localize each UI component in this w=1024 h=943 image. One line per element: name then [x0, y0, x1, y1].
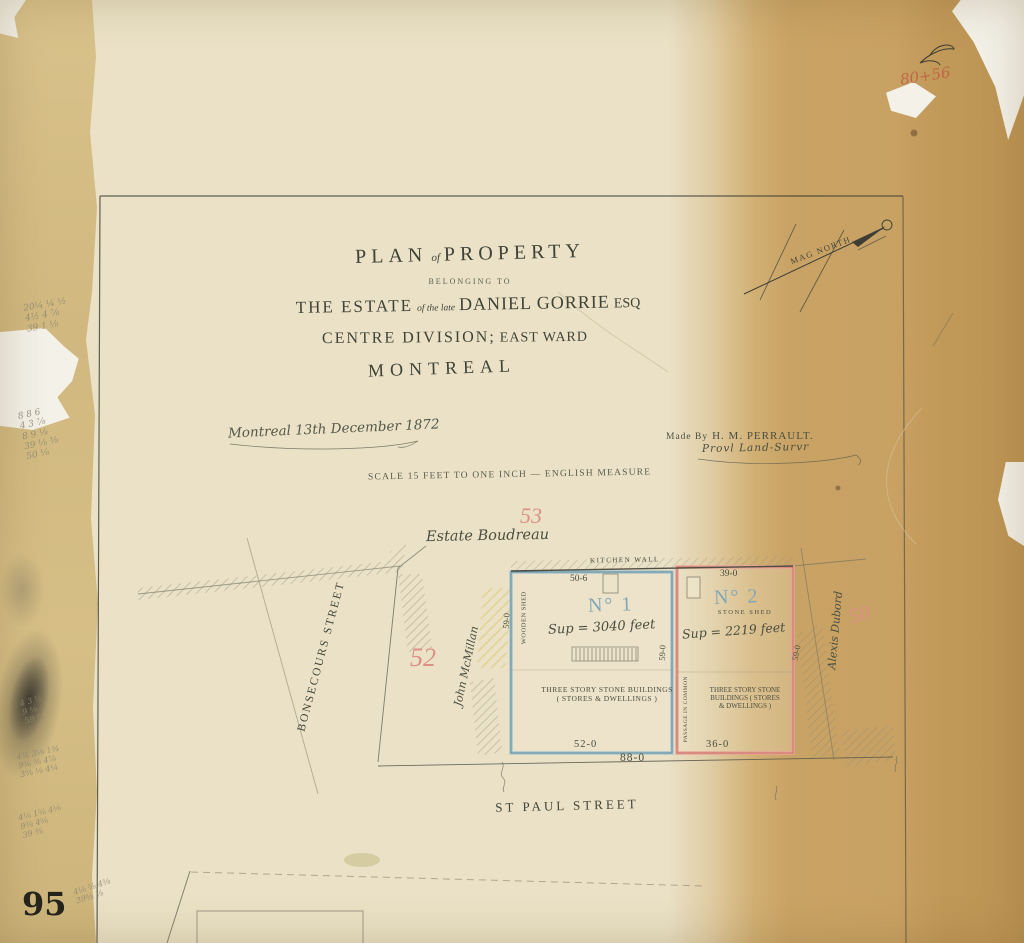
- title-line-division: CENTRE DIVISION; EAST WARD: [290, 328, 620, 349]
- lot1-label: N° 1: [588, 593, 634, 618]
- lot1-area: Sup = 3040 feet: [548, 618, 656, 639]
- lot2-building-label: THREE STORY STONE BUILDINGS ( STORES & D…: [692, 686, 798, 710]
- lot2-dim-top: 39-0: [720, 569, 737, 580]
- lot-number-53: 53: [520, 503, 542, 528]
- title-plan: PLAN: [355, 244, 428, 268]
- date-line: Montreal 13th December 1872: [228, 417, 440, 442]
- passage-label: PASSAGE IN COMMON: [683, 672, 689, 746]
- kitchen-wall-label: KITCHEN WALL: [590, 555, 660, 564]
- lot1-dim-side: 59-0: [502, 606, 513, 636]
- title-the-estate: THE ESTATE: [296, 296, 414, 317]
- scanned-plan-sheet: PLAN of PROPERTY BELONGING TO THE ESTATE…: [0, 0, 1024, 943]
- surveyor-title: Provl Land-Survr: [702, 441, 809, 455]
- title-property: PROPERTY: [444, 240, 586, 266]
- stairs-symbol: [572, 647, 638, 661]
- lot2-dim-bottom: 36-0: [706, 739, 729, 751]
- lot2-label: N° 2: [714, 585, 760, 610]
- lot1-dim-top: 50-6: [570, 574, 587, 585]
- title-of-the-late: of the late: [417, 303, 455, 314]
- title-line-plan-of-property: PLAN of PROPERTY: [320, 239, 620, 270]
- lot-number-52: 52: [410, 643, 436, 673]
- title-ward: EAST WARD: [500, 330, 588, 346]
- total-frontage-dim: 88-0: [620, 752, 645, 765]
- page-number: 95: [22, 886, 67, 923]
- title-of: of: [431, 252, 440, 264]
- st-paul-street-label: ST PAUL STREET: [452, 796, 682, 817]
- mid-dim-label: 59-0: [658, 638, 669, 668]
- made-by-label: Made By: [666, 432, 708, 442]
- title-line-estate: THE ESTATE of the late DANIEL GORRIE ESQ: [258, 290, 678, 319]
- lot2-stone-shed-label: STONE SHED: [706, 609, 784, 616]
- estate-boudreau-label: Estate Boudreau: [426, 527, 549, 546]
- pencil-sketch: [167, 871, 704, 943]
- bonsecours-street-label: BONSECOURS STREET: [292, 568, 351, 745]
- surveyor-name: H. M. PERRAULT.: [712, 430, 814, 442]
- scale-note: SCALE 15 FEET TO ONE INCH — ENGLISH MEAS…: [368, 468, 651, 484]
- title-belonging-to: BELONGING TO: [400, 277, 540, 286]
- lot1-building-label: THREE STORY STONE BUILDINGS ( STORES & D…: [522, 686, 692, 703]
- lot1-wooden-shed-label: WOODEN SHED: [520, 588, 527, 648]
- lot1-dim-bottom: 52-0: [574, 739, 597, 751]
- john-mcmillan-label: John McMillan: [447, 601, 486, 731]
- title-division: CENTRE DIVISION;: [322, 329, 496, 348]
- title-city: MONTREAL: [352, 355, 533, 382]
- title-owner-name: DANIEL GORRIE: [459, 292, 610, 315]
- title-esq: ESQ: [614, 296, 641, 311]
